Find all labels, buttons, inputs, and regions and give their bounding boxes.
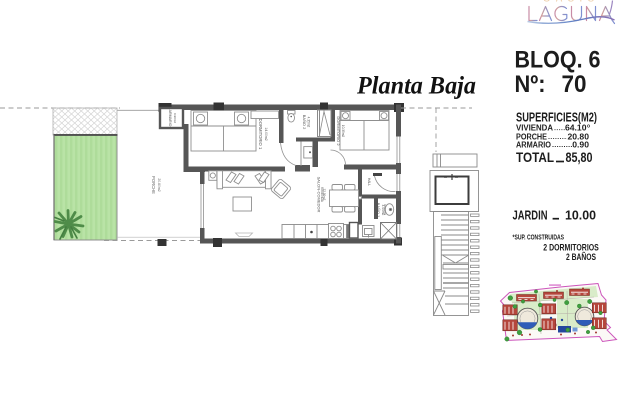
svg-text:20.80m2: 20.80m2 — [157, 178, 161, 191]
svg-text:14.00m2: 14.00m2 — [264, 127, 268, 140]
svg-text:o: o — [587, 124, 590, 130]
svg-text:Planta Baja: Planta Baja — [356, 73, 476, 100]
svg-text:70: 70 — [562, 71, 587, 98]
svg-text:85,80: 85,80 — [566, 150, 593, 165]
svg-text:PORCHE: PORCHE — [151, 176, 156, 194]
svg-text:BAÑO 1: BAÑO 1 — [376, 203, 381, 218]
svg-text:4.00m2: 4.00m2 — [381, 205, 385, 216]
svg-text:ARMARIO: ARMARIO — [168, 110, 172, 127]
svg-text:TOTAL: TOTAL — [516, 150, 554, 165]
svg-text:2 BAÑOS: 2 BAÑOS — [566, 252, 596, 262]
svg-text:4.35m2: 4.35m2 — [307, 117, 311, 128]
svg-text:*SUP. CONSTRUIDAS: *SUP. CONSTRUIDAS — [513, 234, 565, 241]
svg-text:10.00: 10.00 — [565, 209, 596, 223]
svg-text:0.90: 0.90 — [572, 140, 589, 150]
svg-text:Nº:: Nº: — [515, 71, 546, 98]
svg-text:DORMITORIO 1: DORMITORIO 1 — [258, 119, 263, 150]
svg-text:BLOQ. 6: BLOQ. 6 — [515, 46, 601, 73]
svg-text:0.90m2: 0.90m2 — [173, 113, 177, 123]
svg-text:OASIS: OASIS — [543, 0, 600, 5]
svg-text:BAÑO 2: BAÑO 2 — [302, 115, 307, 130]
svg-text:ARMARIO: ARMARIO — [516, 140, 551, 150]
svg-text:JARDIN: JARDIN — [513, 209, 548, 223]
svg-text:DORMITORIO 2: DORMITORIO 2 — [336, 116, 341, 146]
svg-text:HALL: HALL — [367, 178, 371, 186]
svg-text:10.35m2: 10.35m2 — [341, 125, 345, 138]
svg-text:22.50m2: 22.50m2 — [323, 189, 327, 201]
